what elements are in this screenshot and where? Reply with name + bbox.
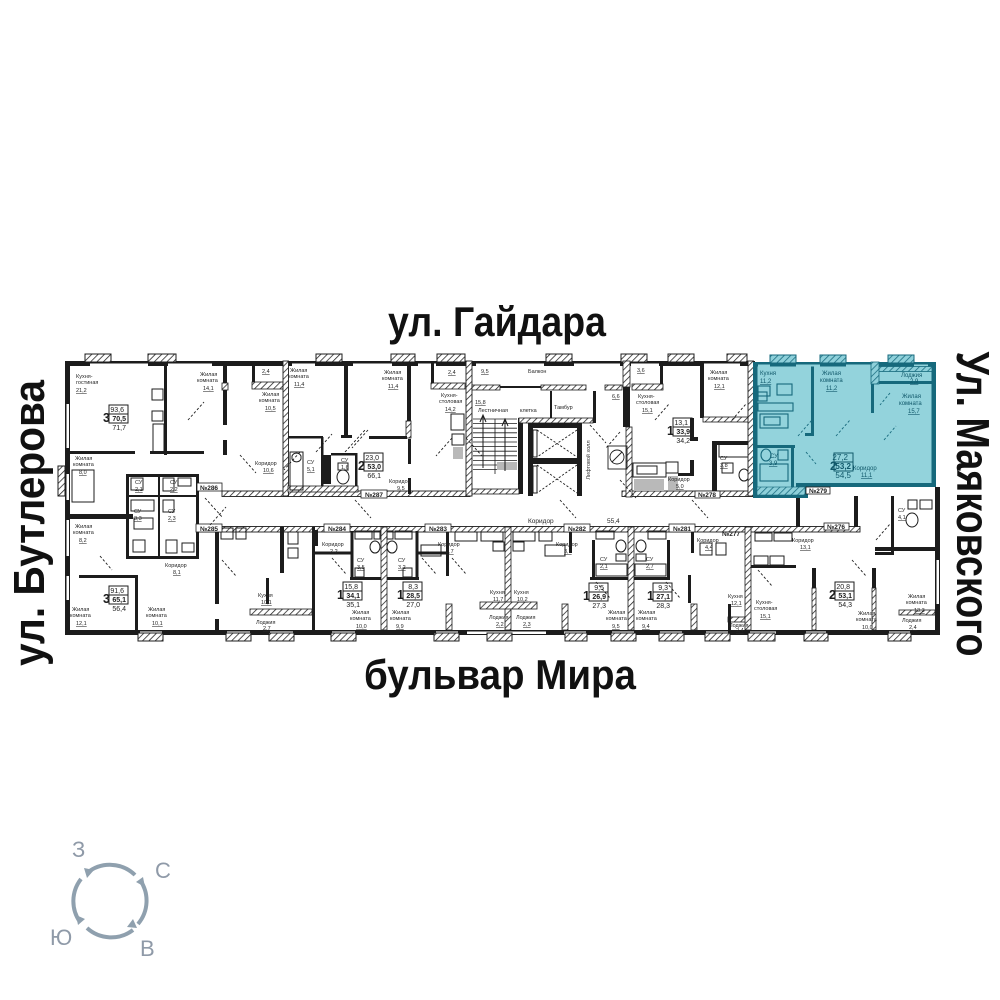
svg-text:9,5: 9,5 <box>612 624 620 630</box>
svg-text:СУ: СУ <box>398 558 406 564</box>
svg-text:12,1: 12,1 <box>76 621 87 627</box>
svg-text:комната: комната <box>906 600 928 606</box>
svg-text:9,3: 9,3 <box>658 585 668 592</box>
svg-text:12,1: 12,1 <box>731 601 742 607</box>
svg-text:3,5: 3,5 <box>357 565 365 571</box>
svg-text:№284: №284 <box>328 526 346 533</box>
svg-text:комната: комната <box>197 378 219 384</box>
svg-text:13,3: 13,3 <box>914 608 925 614</box>
svg-text:4,4: 4,4 <box>705 545 713 551</box>
svg-text:№283: №283 <box>429 526 447 533</box>
svg-text:комната: комната <box>390 616 412 622</box>
svg-text:ул. Бутлерова: ул. Бутлерова <box>5 380 54 666</box>
svg-text:15,7: 15,7 <box>908 409 920 415</box>
svg-text:Коридор: Коридор <box>322 542 344 548</box>
svg-text:6,6: 6,6 <box>612 394 620 400</box>
svg-text:93,6: 93,6 <box>110 407 124 414</box>
svg-text:№276: №276 <box>827 524 845 531</box>
svg-text:Коридор: Коридор <box>255 461 277 467</box>
svg-text:Лифтовой холл: Лифтовой холл <box>585 440 592 479</box>
svg-text:26,9: 26,9 <box>592 594 606 601</box>
svg-text:8,1: 8,1 <box>173 570 181 576</box>
svg-text:ул. Гайдара: ул. Гайдара <box>388 298 607 345</box>
svg-text:3,6: 3,6 <box>637 368 645 374</box>
svg-text:комната: комната <box>73 462 95 468</box>
svg-text:№278: №278 <box>698 492 716 499</box>
svg-text:№277: №277 <box>722 531 740 538</box>
svg-text:3,7: 3,7 <box>446 549 454 555</box>
svg-text:комната: комната <box>350 616 372 622</box>
svg-text:СУ: СУ <box>135 480 143 486</box>
svg-text:11,4: 11,4 <box>388 384 398 390</box>
svg-text:28,5: 28,5 <box>406 593 420 600</box>
svg-text:комната: комната <box>259 398 281 404</box>
svg-text:21,2: 21,2 <box>76 388 87 394</box>
svg-text:11,1: 11,1 <box>861 473 873 479</box>
svg-text:53,1: 53,1 <box>838 593 852 600</box>
svg-text:З: З <box>72 837 85 862</box>
svg-text:2,7: 2,7 <box>263 626 271 632</box>
svg-text:комната: комната <box>856 617 878 623</box>
svg-text:комната: комната <box>73 530 95 536</box>
svg-text:2,4: 2,4 <box>909 625 917 631</box>
svg-text:27,0: 27,0 <box>406 602 420 609</box>
svg-text:СУ: СУ <box>134 509 142 515</box>
svg-text:3,9: 3,9 <box>769 461 778 467</box>
svg-text:гостиная: гостиная <box>76 380 98 386</box>
svg-text:27,1: 27,1 <box>656 594 670 601</box>
svg-text:20,8: 20,8 <box>836 584 850 591</box>
svg-text:53,2: 53,2 <box>835 462 851 471</box>
svg-text:№282: №282 <box>568 526 586 533</box>
svg-text:8,0: 8,0 <box>79 470 87 476</box>
svg-text:10,1: 10,1 <box>152 621 163 627</box>
svg-text:СУ: СУ <box>600 557 608 563</box>
svg-text:35,1: 35,1 <box>346 602 360 609</box>
svg-text:34,2: 34,2 <box>676 438 690 445</box>
svg-text:комната: комната <box>606 616 628 622</box>
svg-text:11,2: 11,2 <box>826 386 838 392</box>
svg-text:столовая: столовая <box>754 606 777 612</box>
svg-text:Ю: Ю <box>50 925 72 950</box>
svg-text:15,8: 15,8 <box>344 584 358 591</box>
svg-text:11,4: 11,4 <box>294 382 304 388</box>
svg-text:СУ: СУ <box>898 508 906 514</box>
svg-text:Лестничная: Лестничная <box>478 408 508 414</box>
svg-text:11,7: 11,7 <box>493 597 503 603</box>
svg-text:9,4: 9,4 <box>642 624 650 630</box>
svg-text:33,9: 33,9 <box>676 429 690 436</box>
svg-text:5,1: 5,1 <box>307 467 315 473</box>
svg-text:Коридор: Коридор <box>389 479 411 485</box>
svg-text:Кухня: Кухня <box>514 590 529 596</box>
svg-text:14,1: 14,1 <box>203 386 214 392</box>
svg-text:10,1: 10,1 <box>261 600 272 606</box>
svg-text:столовая: столовая <box>636 400 659 406</box>
svg-text:столовая: столовая <box>439 399 462 405</box>
svg-text:5,0: 5,0 <box>676 484 684 490</box>
svg-text:9,5: 9,5 <box>481 369 489 375</box>
svg-text:Кухня: Кухня <box>490 590 505 596</box>
svg-text:2,4: 2,4 <box>448 370 456 376</box>
svg-text:23,0: 23,0 <box>365 455 379 462</box>
svg-text:бульвар Мира: бульвар Мира <box>364 651 637 698</box>
svg-text:2,3: 2,3 <box>523 622 531 628</box>
svg-text:15,8: 15,8 <box>475 400 486 406</box>
svg-text:55,4: 55,4 <box>607 518 620 525</box>
svg-text:С: С <box>155 858 171 883</box>
svg-text:13,1: 13,1 <box>674 420 688 427</box>
svg-text:66,1: 66,1 <box>367 473 381 480</box>
svg-text:4,1: 4,1 <box>898 515 906 521</box>
svg-text:15,1: 15,1 <box>642 408 653 414</box>
svg-text:Кухня: Кухня <box>258 593 273 599</box>
svg-text:СУ: СУ <box>168 509 176 515</box>
svg-text:СУ: СУ <box>357 558 365 564</box>
svg-text:8,3: 8,3 <box>408 584 418 591</box>
svg-text:2,2: 2,2 <box>170 487 178 493</box>
svg-text:11,2: 11,2 <box>760 379 772 385</box>
svg-text:Балкон: Балкон <box>528 369 546 375</box>
svg-text:Коридор: Коридор <box>556 542 578 548</box>
svg-text:10,5: 10,5 <box>265 406 276 412</box>
svg-text:10,0: 10,0 <box>862 625 873 631</box>
svg-text:14,2: 14,2 <box>445 407 456 413</box>
svg-text:3,7: 3,7 <box>564 549 572 555</box>
svg-text:комната: комната <box>70 613 92 619</box>
svg-text:клетка: клетка <box>520 408 538 414</box>
svg-text:3,2: 3,2 <box>398 565 406 571</box>
svg-text:Жилая: Жилая <box>822 371 841 377</box>
svg-text:№281: №281 <box>673 526 691 533</box>
svg-text:54,3: 54,3 <box>838 602 852 609</box>
svg-text:комната: комната <box>382 376 404 382</box>
svg-text:Коридор: Коридор <box>438 542 460 548</box>
svg-text:2,3: 2,3 <box>168 516 176 522</box>
svg-text:8,2: 8,2 <box>79 538 87 544</box>
svg-text:№286: №286 <box>200 485 218 492</box>
svg-text:СУ: СУ <box>341 458 349 464</box>
svg-text:54,5: 54,5 <box>835 471 851 480</box>
svg-text:комната: комната <box>146 613 168 619</box>
svg-text:53,0: 53,0 <box>367 464 381 471</box>
svg-text:СУ: СУ <box>720 456 728 462</box>
svg-text:2,9: 2,9 <box>910 379 919 385</box>
svg-text:Коридор: Коридор <box>853 466 877 472</box>
svg-text:Коридор: Коридор <box>528 518 554 525</box>
svg-text:СУ: СУ <box>307 460 315 466</box>
svg-text:комната: комната <box>820 378 843 384</box>
svg-text:комната: комната <box>899 401 922 407</box>
svg-text:комната: комната <box>636 616 658 622</box>
svg-text:34,1: 34,1 <box>346 593 360 600</box>
svg-text:1,6: 1,6 <box>341 465 349 471</box>
svg-text:Коридор: Коридор <box>792 538 814 544</box>
svg-text:70,5: 70,5 <box>112 416 126 423</box>
svg-text:2,7: 2,7 <box>646 564 654 570</box>
svg-text:СУ: СУ <box>170 480 178 486</box>
svg-text:Коридор: Коридор <box>165 563 187 569</box>
svg-text:28,3: 28,3 <box>656 603 670 610</box>
svg-text:56,4: 56,4 <box>112 606 126 613</box>
svg-text:комната: комната <box>288 374 310 380</box>
svg-text:№279: №279 <box>809 488 827 495</box>
svg-text:91,6: 91,6 <box>110 588 124 595</box>
svg-text:13,1: 13,1 <box>800 545 811 551</box>
svg-text:комната: комната <box>708 376 730 382</box>
svg-text:12,1: 12,1 <box>714 384 725 390</box>
svg-text:СУ: СУ <box>646 557 654 563</box>
svg-text:Коридор: Коридор <box>697 538 719 544</box>
svg-text:2,2: 2,2 <box>330 549 338 555</box>
svg-text:В: В <box>140 936 155 961</box>
svg-text:2,4: 2,4 <box>262 369 270 375</box>
svg-text:2,1: 2,1 <box>600 564 608 570</box>
svg-text:№285: №285 <box>200 526 218 533</box>
svg-text:10,2: 10,2 <box>517 597 528 603</box>
svg-text:15,1: 15,1 <box>760 614 771 620</box>
svg-text:Кухня: Кухня <box>760 371 776 377</box>
svg-text:Жилая: Жилая <box>902 394 921 400</box>
svg-text:Коридор: Коридор <box>668 477 690 483</box>
svg-text:Лоджия: Лоджия <box>902 618 922 624</box>
svg-text:3,8: 3,8 <box>720 463 728 469</box>
svg-text:Лоджия: Лоджия <box>516 615 536 621</box>
svg-text:3,3: 3,3 <box>134 516 142 522</box>
svg-text:СУ: СУ <box>770 454 778 460</box>
svg-text:Тамбур: Тамбур <box>554 405 573 411</box>
svg-text:65,1: 65,1 <box>112 597 126 604</box>
svg-text:10,6: 10,6 <box>263 468 274 474</box>
svg-text:№287: №287 <box>365 492 383 499</box>
svg-text:2,2: 2,2 <box>496 622 504 628</box>
svg-text:9,9: 9,9 <box>396 624 404 630</box>
svg-text:10,0: 10,0 <box>356 624 367 630</box>
svg-text:9,5: 9,5 <box>397 486 405 492</box>
svg-text:27,3: 27,3 <box>592 603 606 610</box>
svg-text:2,4: 2,4 <box>736 628 744 634</box>
svg-text:Лоджия: Лоджия <box>489 615 509 621</box>
svg-text:71,7: 71,7 <box>112 425 126 432</box>
svg-text:2,1: 2,1 <box>135 487 143 493</box>
svg-text:Ул. Маяковского: Ул. Маяковского <box>947 352 999 657</box>
svg-text:Кухня: Кухня <box>728 594 743 600</box>
